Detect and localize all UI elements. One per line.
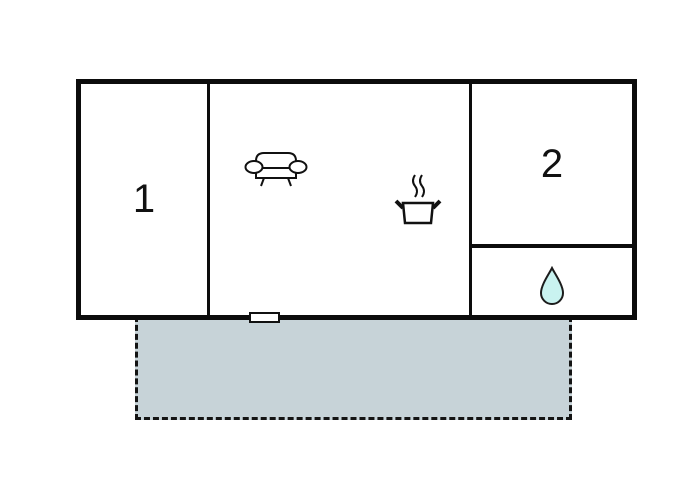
cooking-pot-steam-icon	[394, 172, 442, 228]
interior-wall-room1	[207, 84, 210, 315]
water-drop-icon	[538, 266, 566, 306]
door-window-marker	[249, 312, 280, 323]
terrace-area	[135, 316, 572, 420]
sofa-icon	[244, 148, 308, 188]
floor-plan-canvas: 1 2	[0, 0, 700, 500]
room-1-label: 1	[81, 84, 207, 315]
interior-wall-bathroom	[472, 244, 632, 248]
room-2-label: 2	[472, 84, 632, 244]
building-outline: 1 2	[76, 79, 637, 320]
